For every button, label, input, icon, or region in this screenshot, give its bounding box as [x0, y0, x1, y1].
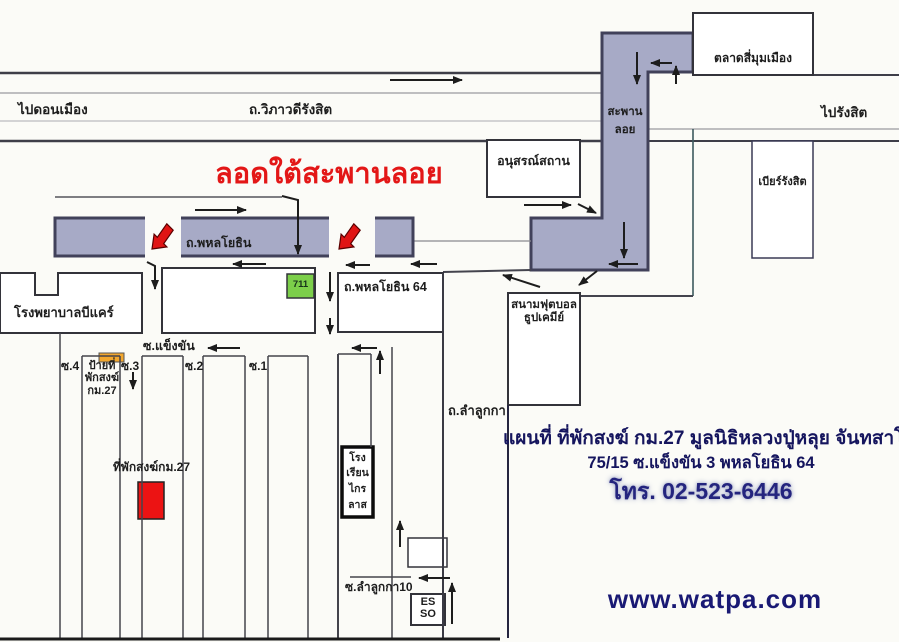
label-vibhavadi-road: ถ.วิภาวดีรังสิต — [249, 102, 332, 117]
vibhavadi-road-lines — [0, 73, 899, 141]
label-market: ตลาดสี่มุมเมือง — [697, 52, 809, 65]
monk-sign-line2: พักสงฆ์ — [85, 372, 119, 384]
label-to-rangsit: ไปรังสิต — [821, 105, 867, 120]
label-monk-residence: ที่พักสงฆ์กม.27 — [113, 461, 190, 474]
esso-line1: ES — [421, 596, 436, 608]
school-line4: ลาส — [348, 498, 367, 514]
stadium-line2: ธูปเคมีย์ — [524, 312, 564, 325]
label-flyover-line2: ลอย — [602, 124, 648, 137]
school-line1: โรง — [349, 451, 365, 467]
info-panel: แผนที่ ที่พักสงฆ์ กม.27 มูลนิธิหลวงปู่หล… — [503, 428, 899, 504]
label-to-don-mueang: ไปดอนเมือง — [18, 102, 88, 117]
school-line2: เรียน — [346, 466, 369, 482]
info-website: www.watpa.com — [565, 585, 865, 614]
info-phone: โทร. 02-523-6446 — [503, 479, 899, 505]
esso-line2: SO — [420, 608, 436, 620]
label-pass-under-flyover: ลอดใต้สะพานลอย — [215, 158, 443, 190]
label-lam-luk-ka-road: ถ.ลำลูกกา — [448, 404, 506, 419]
label-hospital: โรงพยาบาลบีแคร์ — [14, 306, 114, 321]
info-address: 75/15 ซ.แข็งขัน 3 พหลโยธิน 64 — [503, 454, 899, 472]
small-box — [408, 538, 447, 567]
map-canvas: ไปดอนเมือง ถ.วิภาวดีรังสิต ไปรังสิต ตลาด… — [0, 0, 899, 642]
label-school: โรง เรียน ไกร ลาส — [342, 449, 373, 515]
label-monk-sign: ป้ายที่ พักสงฆ์ กม.27 — [83, 360, 121, 397]
map-drawing-layer — [0, 0, 899, 642]
label-phahonyothin-64: ถ.พหลโยธิน 64 — [344, 280, 427, 294]
market-box — [693, 13, 813, 75]
label-esso: ES SO — [411, 596, 445, 621]
monk-sign-line3: กม.27 — [87, 385, 116, 397]
buildings — [0, 13, 813, 625]
monk-sign-line1: ป้ายที่ — [89, 360, 116, 372]
label-soi-3: ซ.3 — [121, 360, 139, 373]
label-phahonyothin: ถ.พหลโยธิน — [186, 236, 251, 250]
direction-arrows — [133, 52, 676, 624]
label-soi-2: ซ.2 — [185, 360, 203, 373]
label-stadium: สนามฟุตบอล ธูปเคมีย์ — [509, 299, 579, 325]
label-flyover-line1: สะพาน — [602, 106, 648, 119]
stadium-line1: สนามฟุตบอล — [511, 299, 577, 312]
school-line3: ไกร — [349, 482, 366, 498]
memorial-box — [487, 140, 580, 197]
label-memorial: อนุสรณ์สถาน — [489, 154, 578, 168]
label-beer-rangsit: เบียร์รังสิต — [752, 176, 813, 188]
beer-rangsit-box — [752, 141, 813, 258]
b-care-hospital-outline — [0, 273, 142, 333]
label-soi-1: ซ.1 — [249, 360, 267, 373]
label-seven-eleven: 711 — [287, 280, 314, 291]
label-soi-khaeng-khan: ซ.แข็งขัน — [143, 339, 195, 353]
label-soi-4: ซ.4 — [61, 360, 79, 373]
label-soi-lam-luk-ka-10: ซ.ลำลูกกา10 — [345, 581, 413, 594]
info-title: แผนที่ ที่พักสงฆ์ กม.27 มูลนิธิหลวงปู่หล… — [503, 428, 899, 449]
